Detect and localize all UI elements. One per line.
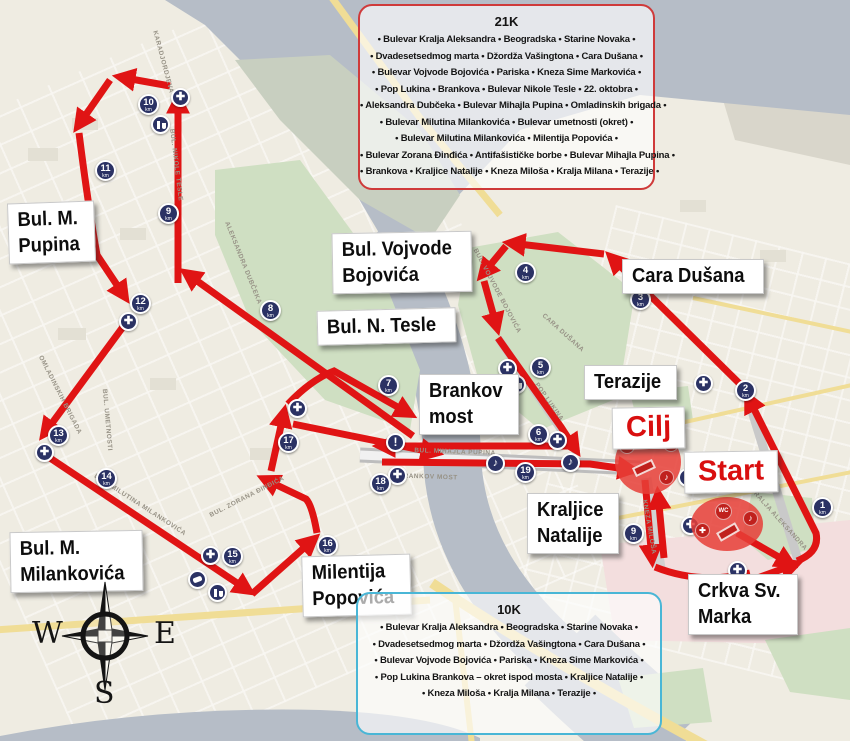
street-name-cara-du-ana: CARA DUŠANA [541, 312, 586, 353]
km-unit: km [737, 394, 754, 399]
street-label-line: Kraljice [537, 497, 603, 523]
street-label-line: Pupina [18, 231, 80, 259]
street-name-karadjordjeva: KARADJORDJEVA [151, 30, 174, 94]
route-street-line: • Brankova • Kraljice Natalije • Kneza M… [360, 164, 653, 181]
street-label-line: Cara Dušana [632, 263, 744, 289]
sponge-icon [188, 570, 207, 589]
route-list-21k: • Bulevar Kralja Aleksandra • Beogradska… [360, 32, 653, 181]
compass-east-label: E [154, 616, 176, 651]
street-name-omladinskih-brigada: OMLADINSKIH BRIGADA [37, 354, 83, 435]
music-icon: ♪ [561, 453, 580, 472]
cross-glyph: ✚ [390, 468, 405, 483]
km-unit: km [625, 537, 642, 542]
aid-cross-icon: ✚ [695, 523, 710, 538]
route-street-line: • Bulevar Zorana Đinđića • Antifašističk… [360, 148, 653, 165]
street-label-line: Terazije [594, 369, 661, 395]
route-box-21k-title: 21K [360, 14, 653, 29]
km-marker-17: 17km [278, 432, 299, 453]
km-marker-10: 10km [138, 94, 159, 115]
km-unit: km [517, 276, 534, 281]
exclaim-icon: ! [386, 433, 405, 452]
street-name-kneza-milo-a: KNEZA MILOŠA [641, 499, 657, 555]
km-marker-1: 1km [812, 497, 833, 518]
route-box-10k-title: 10K [358, 602, 660, 617]
km-unit: km [517, 476, 534, 481]
km-unit: km [319, 549, 336, 554]
exclaim-glyph: ! [388, 435, 403, 450]
km-unit: km [262, 314, 279, 319]
km-unit: km [632, 303, 649, 308]
km-marker-5: 5km [530, 357, 551, 378]
km-marker-19: 19km [515, 462, 536, 483]
street-label-line: Natalije [537, 523, 603, 549]
route-street-line: • Pop Lukina • Brankova • Bulevar Nikole… [360, 82, 653, 99]
street-label-line: most [429, 404, 503, 430]
route-street-line: • Aleksandra Dubčeka • Bulevar Mihajla P… [360, 98, 653, 115]
cross-icon: ✚ [35, 443, 54, 462]
finish-label: Cilj [612, 406, 686, 450]
route-street-line: • Dvadesetsedmog marta • Džordža Vašingt… [358, 637, 660, 654]
cross-glyph: ✚ [550, 433, 565, 448]
street-label-line: Bul. M. [20, 534, 125, 562]
music-icon: ♪ [743, 511, 758, 526]
street-name-bul-vojvode-bojovi-a: BUL. VOJVODE BOJOVIĆA [472, 248, 523, 335]
cross-glyph: ✚ [290, 401, 305, 416]
route-street-line: • Bulevar Kralja Aleksandra • Beogradska… [360, 32, 653, 49]
street-name-bul-zorana-in-i-a: BUL. ZORANA ĐINĐIĆA [208, 475, 285, 519]
start-label: Start [684, 450, 779, 494]
km-marker-16: 16km [317, 535, 338, 556]
route-street-line: • Bulevar Milutina Milankovića • Milenti… [360, 131, 653, 148]
cross-glyph: ✚ [696, 376, 711, 391]
km-unit: km [97, 174, 114, 179]
cross-icon: ✚ [201, 546, 220, 565]
km-unit: km [530, 438, 547, 443]
street-label-bul-vojvode-bojovica: Bul. VojvodeBojovića [331, 231, 472, 294]
street-name-bul-mihajla-pupina: BUL. MIHAJLA PUPINA [414, 447, 496, 457]
km-marker-14: 14km [96, 468, 117, 489]
street-label-line: Milentija [311, 558, 393, 586]
cross-icon: ✚ [119, 312, 138, 331]
music-glyph: ♪ [488, 456, 503, 471]
cross-icon: ✚ [694, 374, 713, 393]
cross-glyph: ✚ [203, 548, 218, 563]
cross-icon: ✚ [171, 88, 190, 107]
km-unit: km [132, 307, 149, 312]
cross-glyph: ✚ [37, 445, 52, 460]
km-unit: km [280, 446, 297, 451]
street-name-bul-umetnosti: BUL. UMETNOSTI [101, 389, 113, 452]
street-label-cara-dusana: Cara Dušana [622, 259, 764, 294]
street-label-crkva-sv-marka: Crkva Sv.Marka [688, 574, 798, 635]
km-marker-12: 12km [130, 293, 151, 314]
compass-south-label: S [94, 676, 115, 711]
route-box-10k: 10K • Bulevar Kralja Aleksandra • Beogra… [356, 592, 662, 735]
street-label-line: Crkva Sv. [698, 578, 781, 604]
km-marker-2: 2km [735, 380, 756, 401]
km-unit: km [160, 217, 177, 222]
route-street-line: • Bulevar Vojvode Bojovića • Pariska • K… [360, 65, 653, 82]
km-unit: km [380, 389, 397, 394]
km-unit: km [532, 371, 549, 376]
music-glyph: ♪ [563, 455, 578, 470]
music-icon: ♪ [486, 454, 505, 473]
street-label-bul-m-pupina: Bul. M.Pupina [7, 201, 96, 265]
km-unit: km [50, 439, 67, 444]
cross-icon: ✚ [548, 431, 567, 450]
street-name-pop-lukina: POP LUKINA [533, 382, 565, 423]
compass-west-label: W [32, 616, 63, 651]
km-marker-11: 11km [95, 160, 116, 181]
cup-icon [151, 115, 170, 134]
start-flag-icon [716, 522, 740, 542]
street-label-line: Bul. Vojvode [342, 235, 453, 263]
compass-rose: W E S [30, 572, 180, 722]
route-list-10k: • Bulevar Kralja Aleksandra • Beogradska… [358, 620, 660, 703]
cross-glyph: ✚ [173, 90, 188, 105]
km-marker-6: 6km [528, 424, 549, 445]
finish-flag-icon [632, 459, 656, 477]
cross-glyph: ✚ [121, 314, 136, 329]
km-unit: km [224, 560, 241, 565]
street-label-kraljice-natalije: KraljiceNatalije [527, 493, 619, 554]
route-street-line: • Dvadesetsedmog marta • Džordža Vašingt… [360, 49, 653, 66]
street-label-line: Bul. M. [17, 205, 79, 233]
route-street-line: • Bulevar Vojvode Bojovića • Pariska • K… [358, 653, 660, 670]
street-label-line: Marka [698, 604, 781, 630]
music-icon: ♪ [659, 470, 674, 485]
km-marker-7: 7km [378, 375, 399, 396]
km-marker-9: 9km [623, 523, 644, 544]
street-name-brankov-most: BRANKOV MOST [398, 472, 458, 481]
street-label-bul-n-tesle: Bul. N. Tesle [317, 307, 456, 346]
route-street-line: • Kneza Miloša • Kralja Milana • Terazij… [358, 686, 660, 703]
route-street-line: • Bulevar Milutina Milankovića • Bulevar… [360, 115, 653, 132]
street-label-brankov-most: Brankovmost [419, 374, 519, 435]
km-unit: km [98, 482, 115, 487]
street-label-line: Brankov [429, 378, 503, 404]
km-marker-8: 8km [260, 300, 281, 321]
street-name-bul-nikole-tesle: BUL. NIKOLE TESLE [168, 128, 184, 201]
km-marker-18: 18km [370, 473, 391, 494]
km-unit: km [140, 108, 157, 113]
km-marker-9: 9km [158, 203, 179, 224]
route-street-line: • Pop Lukina Brankova – okret ispod most… [358, 670, 660, 687]
street-label-line: Bul. N. Tesle [327, 312, 437, 341]
street-name-aleksandra-dub-eka: ALEKSANDRA DUBČEKA [223, 221, 263, 306]
km-unit: km [372, 487, 389, 492]
km-marker-15: 15km [222, 546, 243, 567]
km-marker-4: 4km [515, 262, 536, 283]
street-label-line: Bojovića [342, 261, 453, 289]
route-box-21k: 21K • Bulevar Kralja Aleksandra • Beogra… [358, 4, 655, 190]
km-unit: km [814, 511, 831, 516]
street-label-terazije: Terazije [584, 365, 677, 400]
km-marker-13: 13km [48, 425, 69, 446]
start-zone-blob: WC ♪ ✚ [691, 497, 763, 551]
route-street-line: • Bulevar Kralja Aleksandra • Beogradska… [358, 620, 660, 637]
cup-icon [208, 583, 227, 602]
cross-icon: ✚ [288, 399, 307, 418]
course-map: BUL. NIKOLE TESLEKARADJORDJEVABUL. MIHAJ… [0, 0, 850, 741]
wc-icon: WC [715, 503, 732, 520]
